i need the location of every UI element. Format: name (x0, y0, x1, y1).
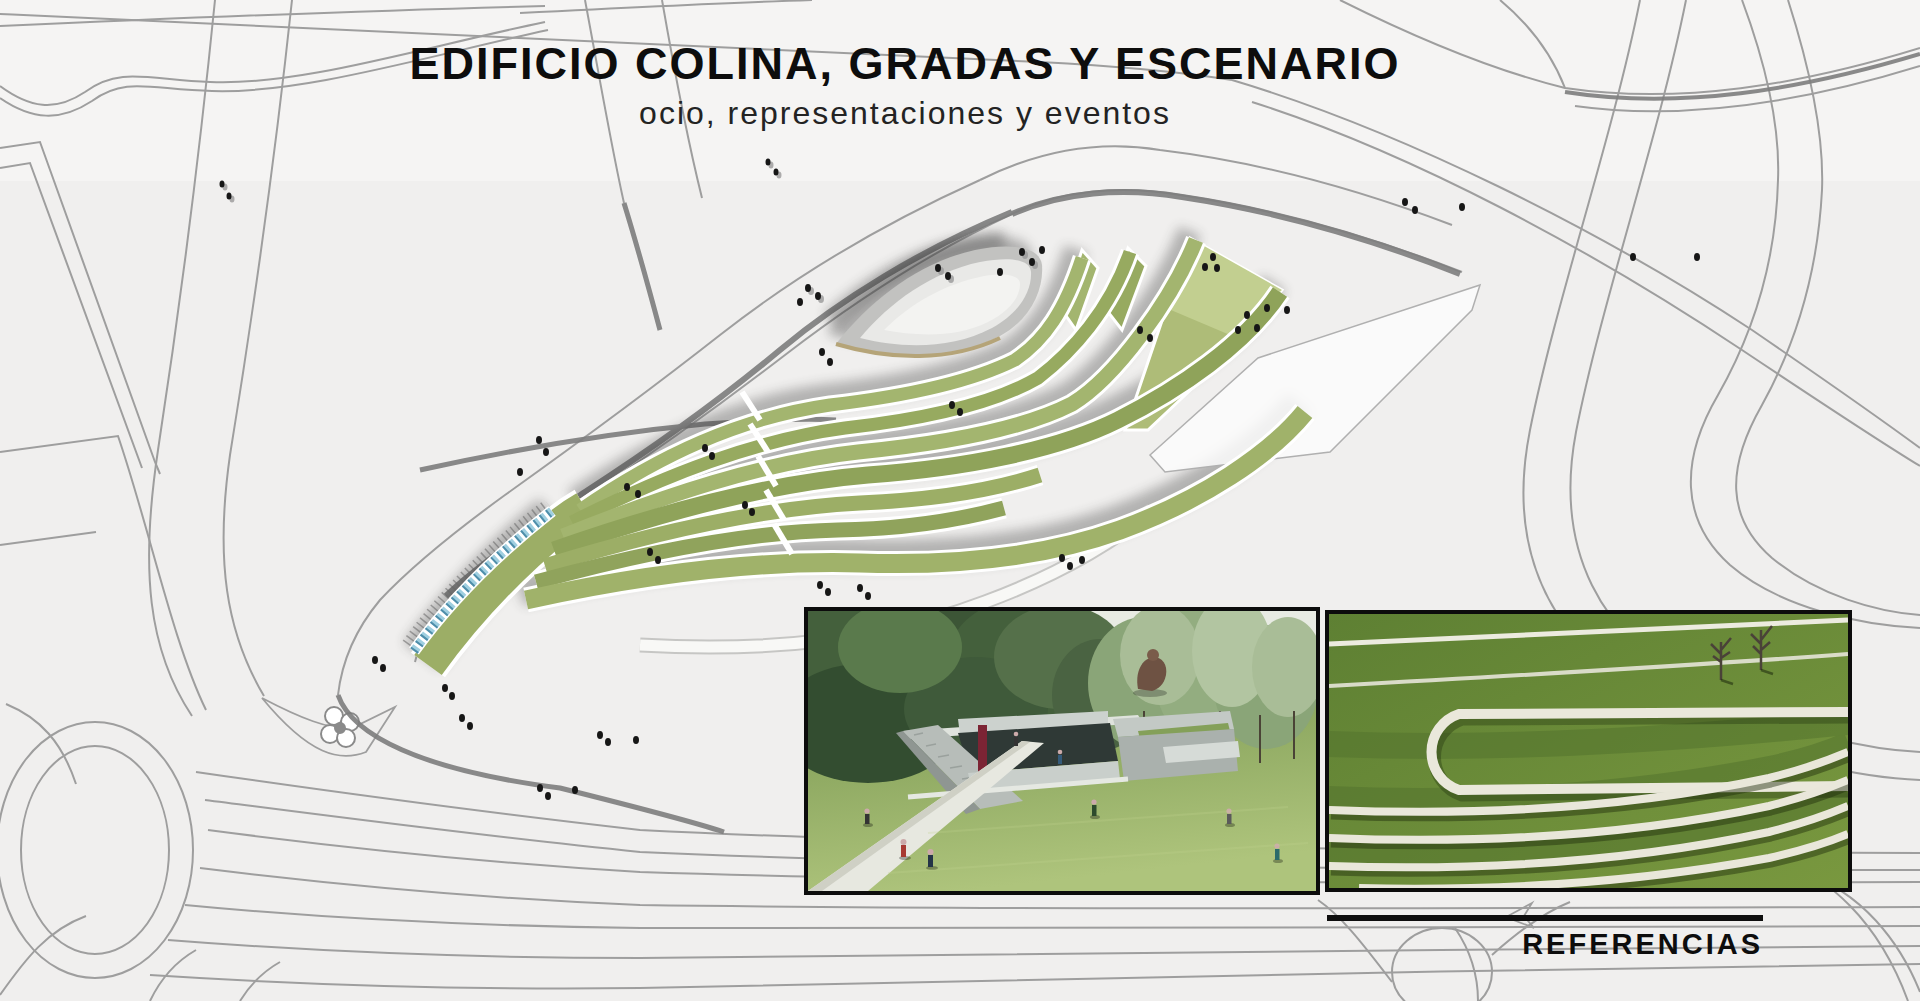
reference-photo-2 (1325, 610, 1852, 892)
presentation-board: EDIFICIO COLINA, GRADAS Y ESCENARIO ocio… (0, 0, 1920, 1001)
reference-photo-1 (804, 607, 1320, 895)
monument-fountain (321, 707, 359, 747)
photo1-art (808, 611, 1316, 891)
references-label: REFERENCIAS (1327, 928, 1763, 961)
photo2-art (1329, 614, 1848, 888)
references-block: REFERENCIAS (1327, 915, 1763, 961)
references-rule (1327, 915, 1763, 921)
